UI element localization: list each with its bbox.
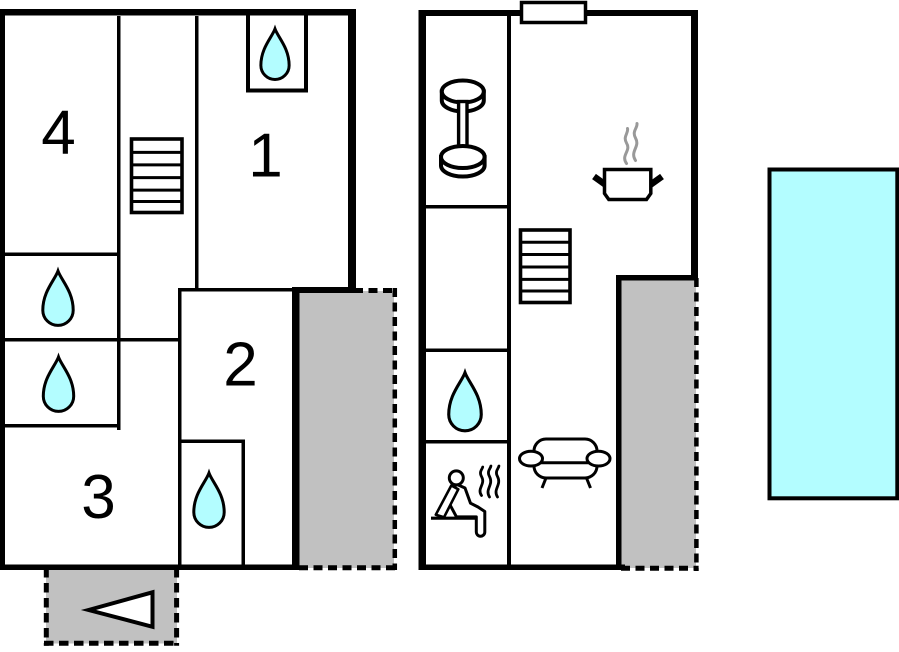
- svg-text:3: 3: [81, 463, 115, 532]
- svg-text:2: 2: [223, 331, 257, 400]
- svg-text:4: 4: [41, 99, 75, 168]
- svg-text:1: 1: [248, 122, 282, 191]
